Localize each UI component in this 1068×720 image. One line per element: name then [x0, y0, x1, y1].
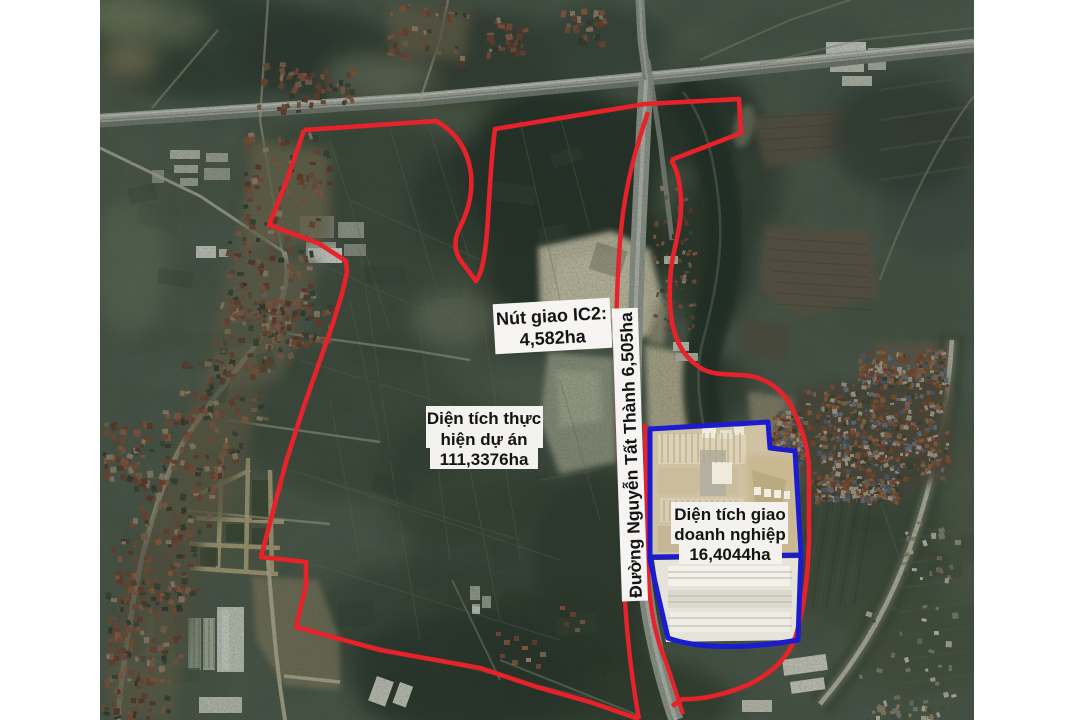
svg-text:111,3376ha: 111,3376ha: [440, 450, 529, 469]
svg-text:16,4044ha: 16,4044ha: [689, 545, 771, 564]
svg-text:hiện dự án: hiện dự án: [441, 430, 528, 449]
svg-text:Diện tích giao: Diện tích giao: [674, 505, 785, 524]
svg-text:doanh nghiệp: doanh nghiệp: [674, 525, 785, 544]
svg-text:Diện tích thực: Diện tích thực: [427, 409, 541, 428]
svg-text:4,582ha: 4,582ha: [519, 326, 587, 350]
